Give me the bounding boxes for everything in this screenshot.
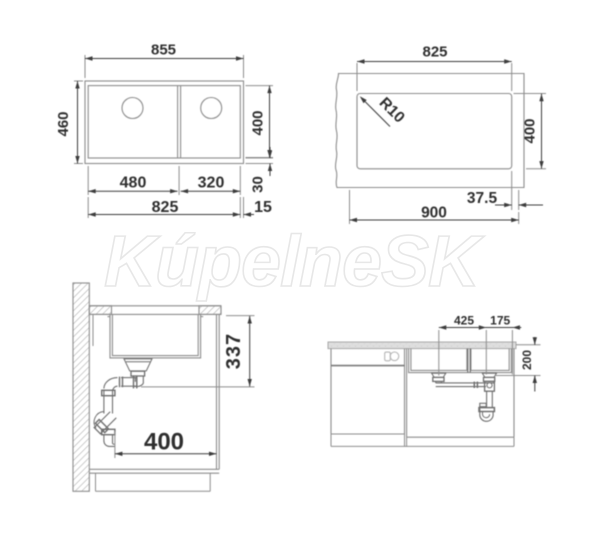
svg-text:400: 400 (144, 429, 184, 456)
svg-text:460: 460 (55, 111, 72, 136)
svg-text:825: 825 (152, 199, 179, 216)
svg-text:320: 320 (198, 175, 225, 192)
svg-text:425: 425 (454, 314, 474, 328)
svg-text:37.5: 37.5 (467, 190, 498, 207)
svg-text:200: 200 (520, 350, 534, 370)
svg-text:825: 825 (422, 44, 447, 61)
svg-text:400: 400 (522, 118, 539, 143)
svg-text:337: 337 (223, 333, 245, 369)
svg-text:175: 175 (490, 314, 510, 328)
svg-text:30: 30 (249, 176, 266, 193)
svg-text:15: 15 (254, 199, 272, 216)
svg-text:855: 855 (151, 42, 176, 59)
svg-text:400: 400 (249, 110, 266, 135)
svg-text:R10: R10 (376, 94, 408, 126)
svg-text:900: 900 (421, 205, 447, 222)
svg-text:480: 480 (120, 175, 147, 192)
